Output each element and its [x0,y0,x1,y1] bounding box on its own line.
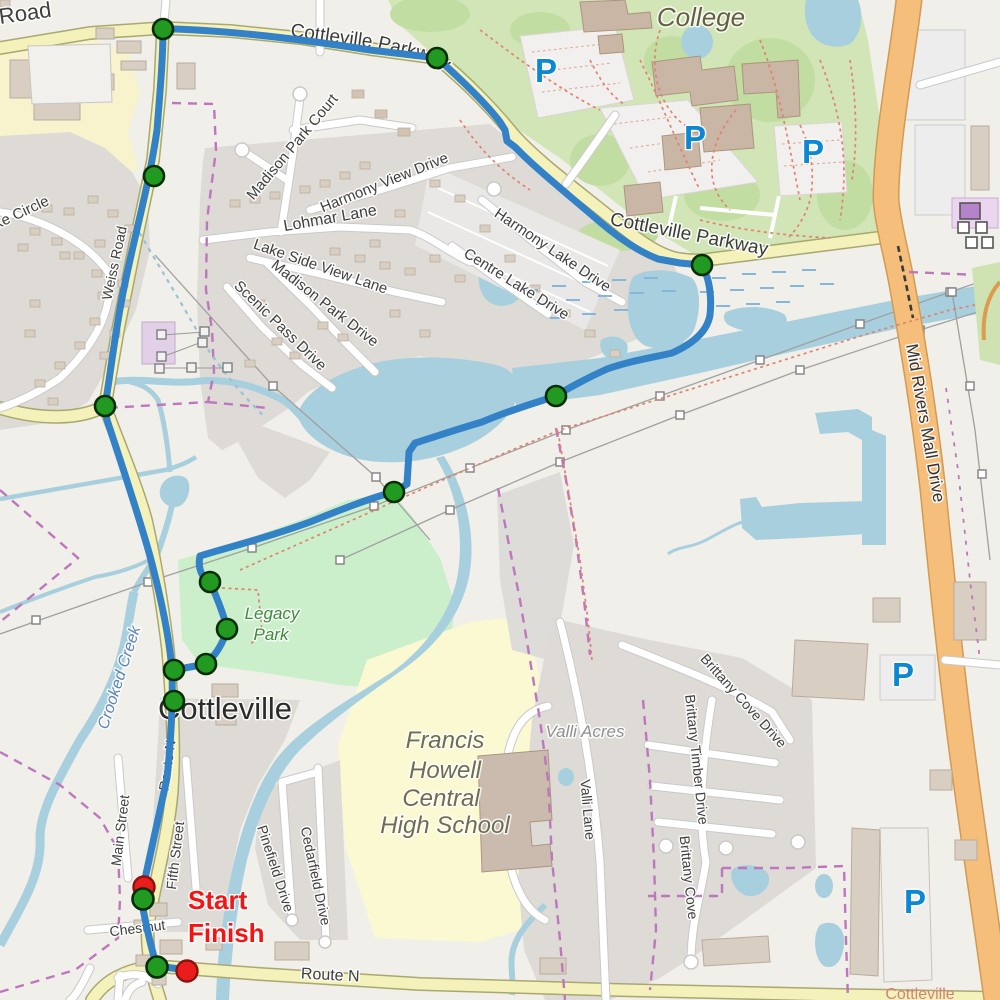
svg-text:Legacy: Legacy [245,604,301,623]
svg-text:Francis: Francis [406,727,485,754]
svg-text:Start: Start [188,885,248,915]
svg-text:P: P [904,883,926,920]
svg-text:Park: Park [254,625,290,644]
svg-text:High School: High School [380,812,510,839]
svg-text:Central: Central [402,785,480,812]
svg-text:College: College [657,2,745,32]
svg-text:P: P [535,52,557,89]
svg-text:P: P [802,133,824,170]
svg-text:Finish: Finish [188,918,265,948]
svg-text:Howell: Howell [409,757,482,784]
svg-text:P: P [684,119,706,156]
svg-text:Cottleville: Cottleville [885,986,954,1000]
svg-text:P: P [892,656,914,693]
svg-text:Route N: Route N [300,965,360,985]
svg-text:Valli Acres: Valli Acres [545,722,625,741]
